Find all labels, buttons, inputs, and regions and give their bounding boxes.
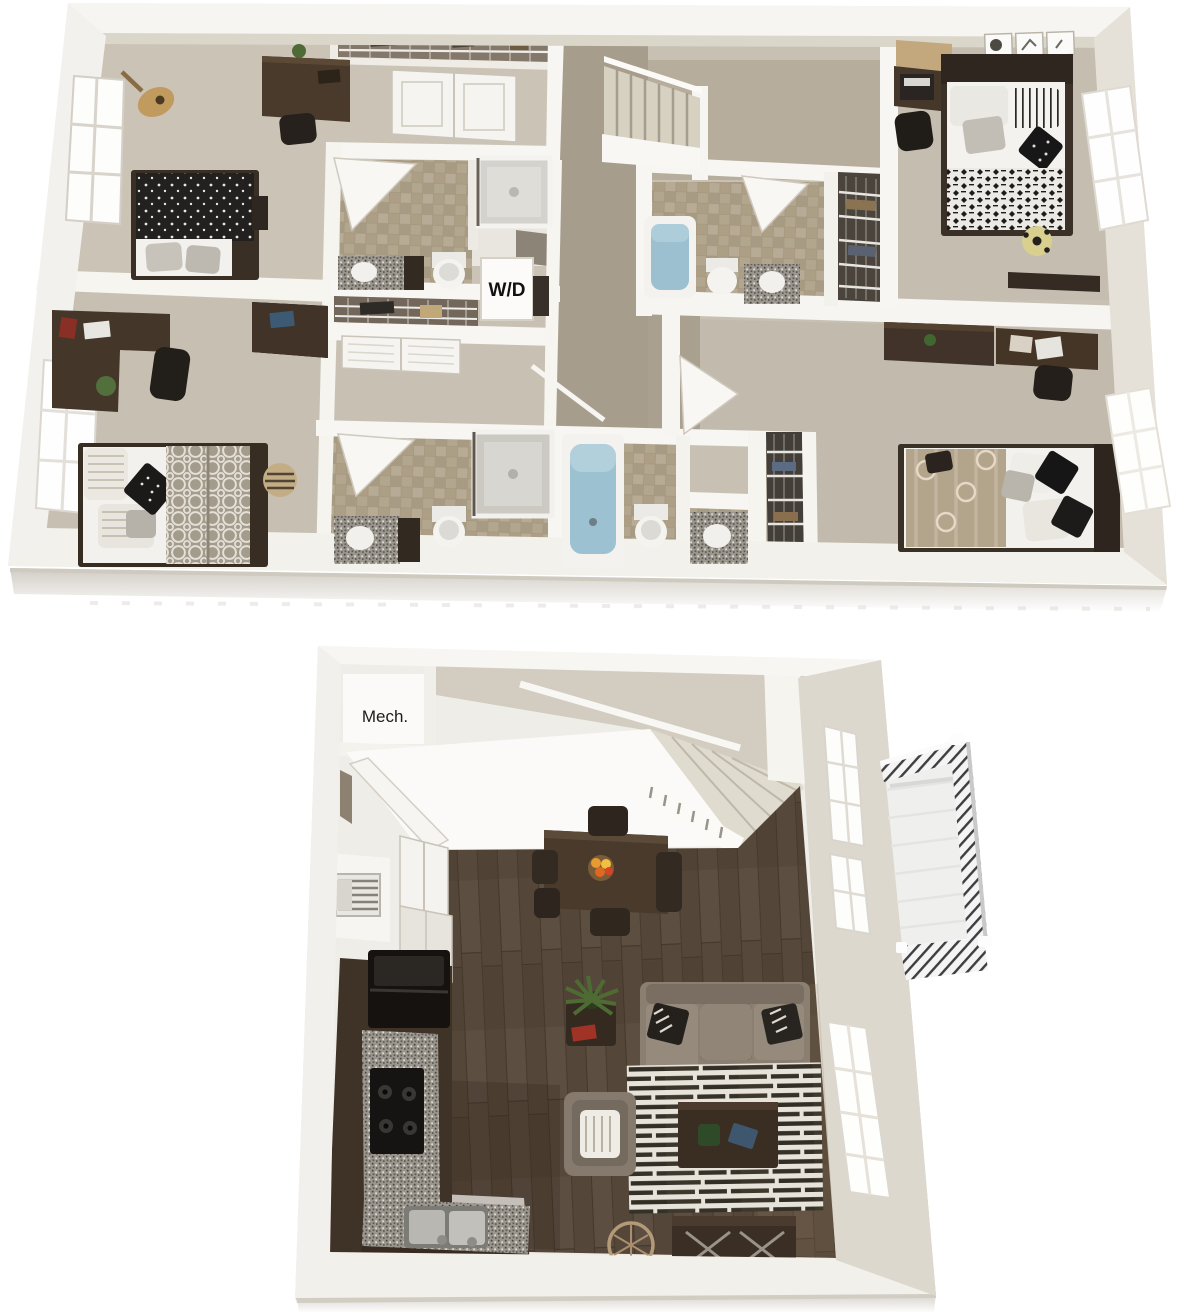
svg-text:Mech.: Mech. (362, 707, 408, 726)
svg-text:W/D: W/D (489, 280, 526, 301)
